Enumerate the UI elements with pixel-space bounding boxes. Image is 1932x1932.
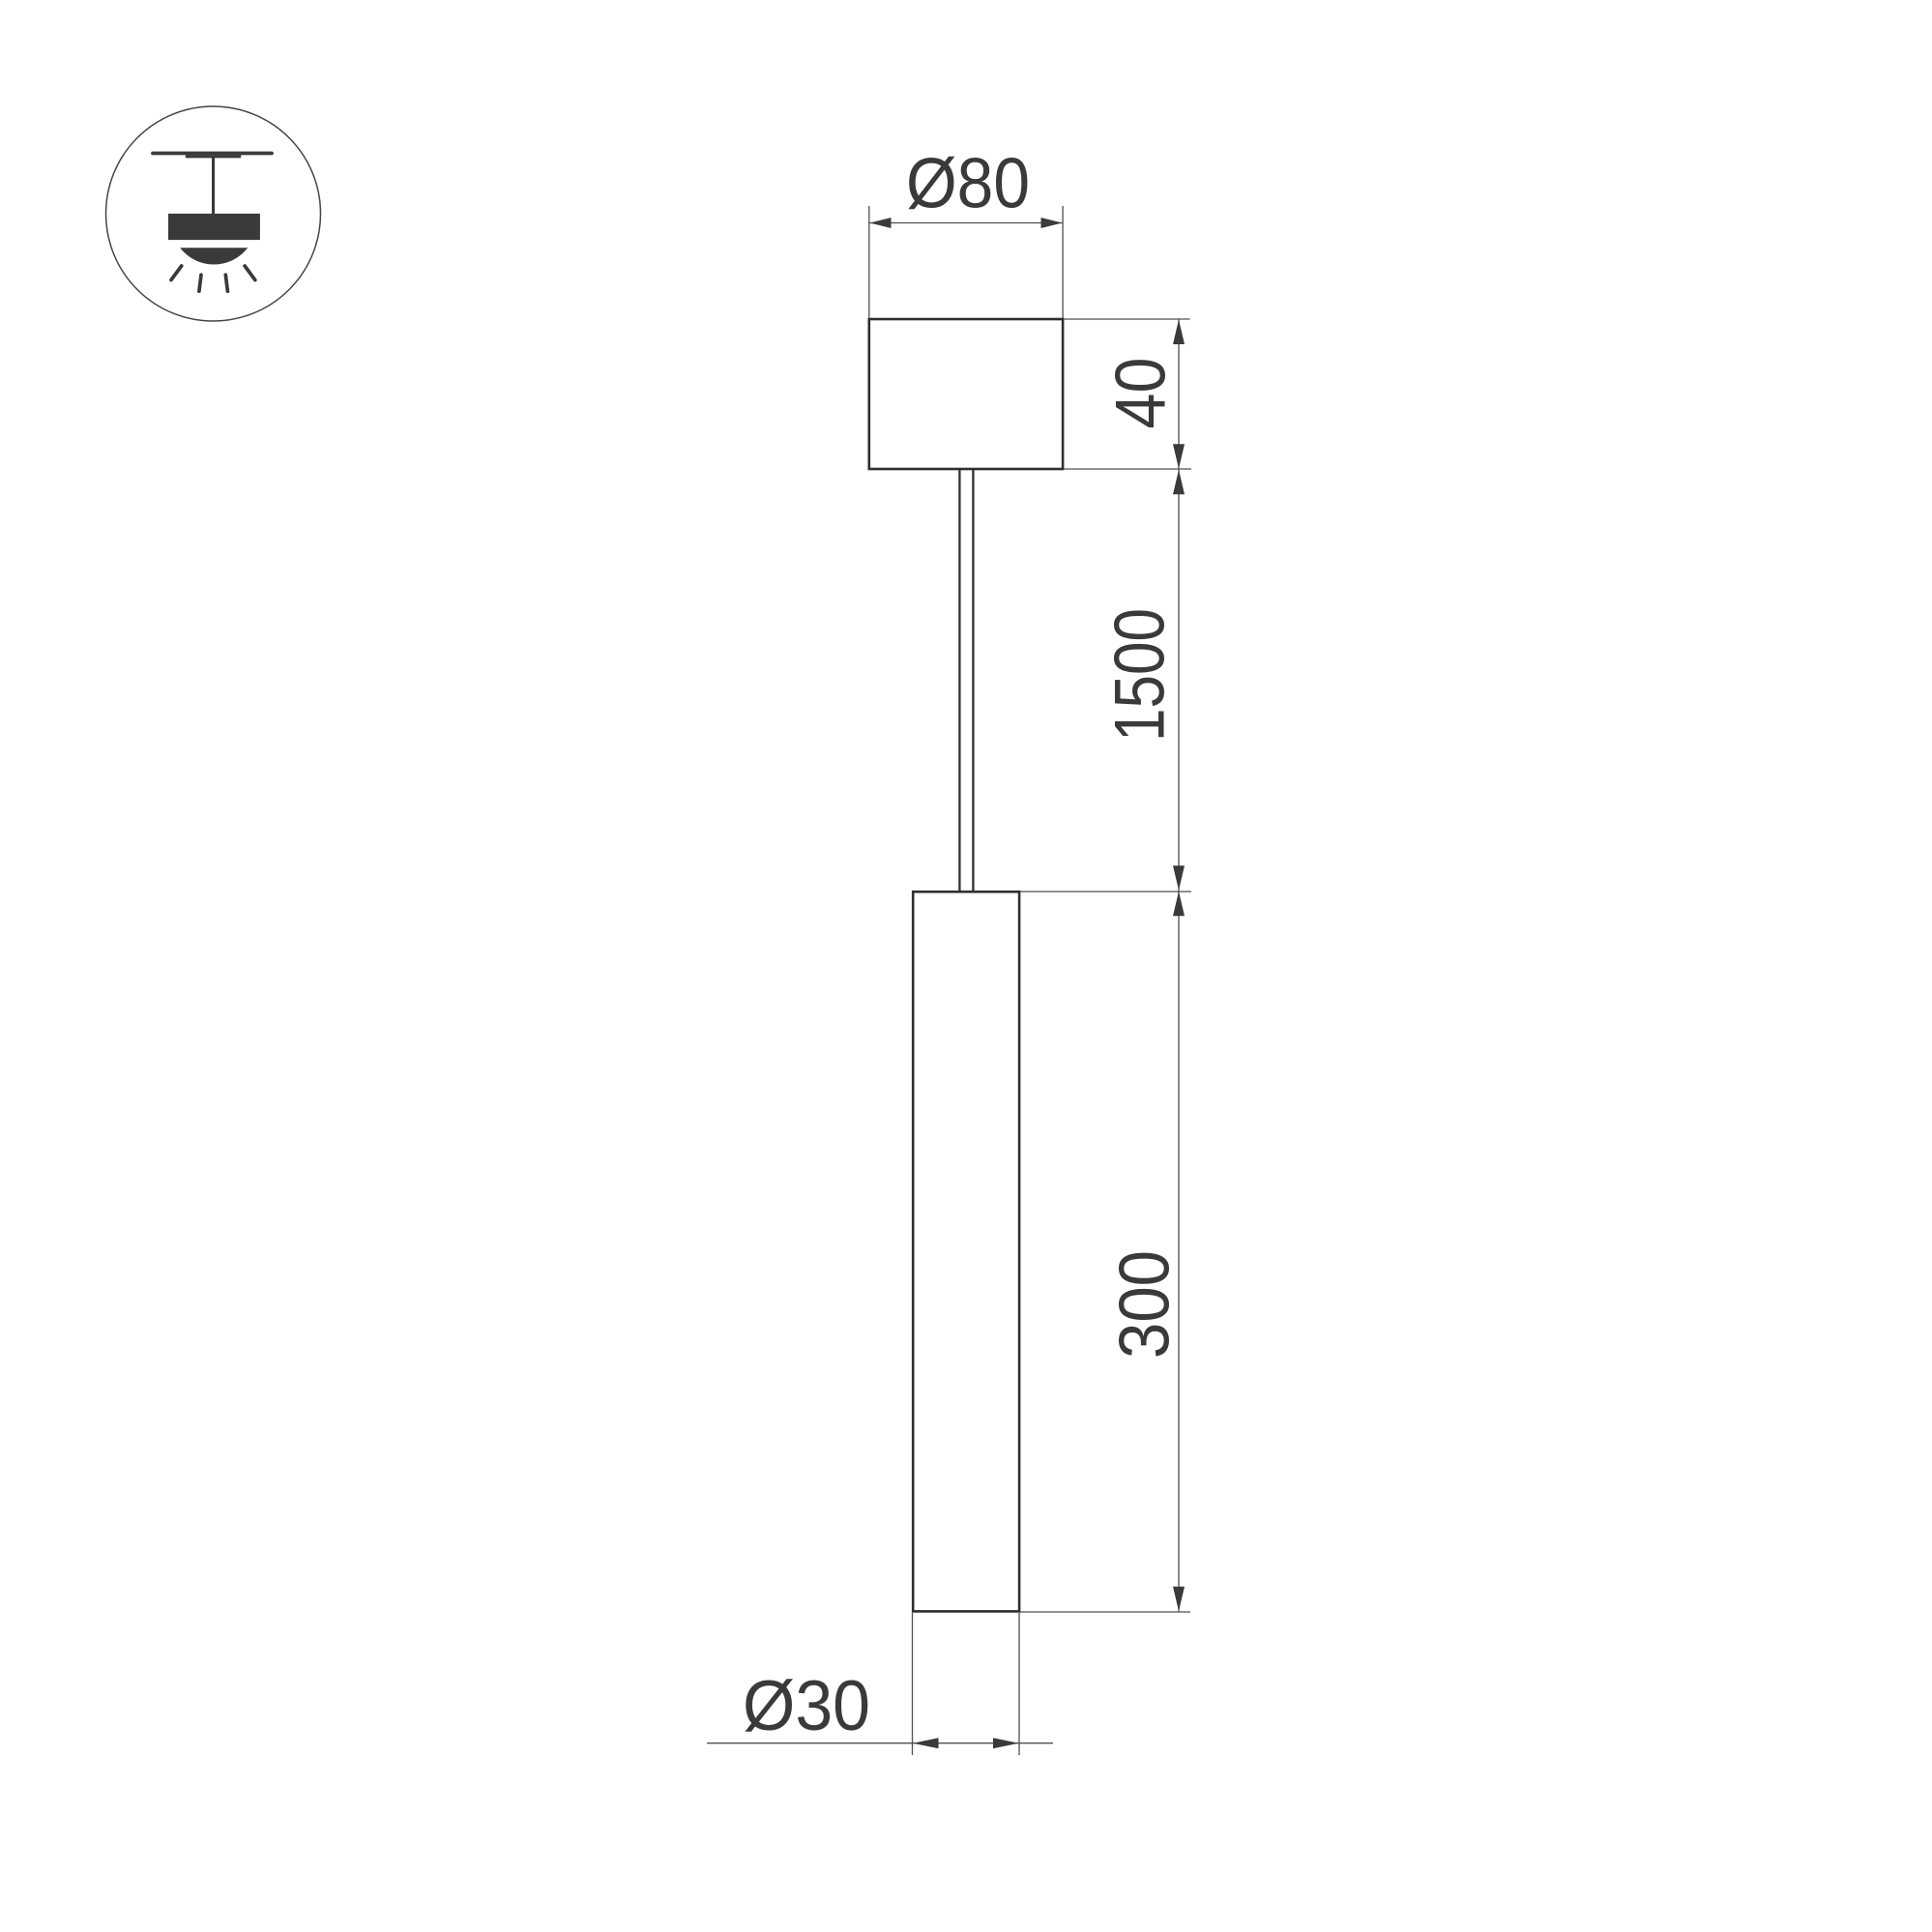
svg-text:1500: 1500 xyxy=(1099,608,1180,742)
svg-text:300: 300 xyxy=(1104,1250,1185,1359)
svg-text:Ø80: Ø80 xyxy=(906,143,1030,223)
svg-text:Ø30: Ø30 xyxy=(743,1665,870,1745)
svg-text:40: 40 xyxy=(1100,358,1181,429)
